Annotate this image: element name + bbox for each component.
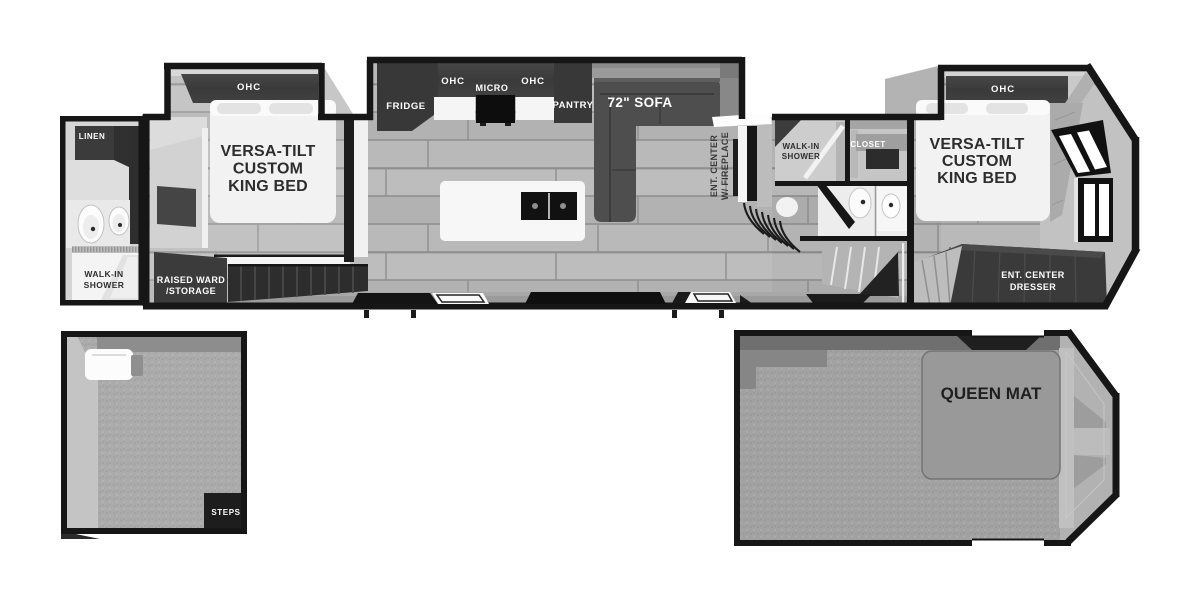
svg-text:KING BED: KING BED [228, 178, 308, 195]
svg-text:SHOWER: SHOWER [84, 280, 125, 290]
svg-text:72" SOFA: 72" SOFA [607, 95, 672, 110]
svg-text:CUSTOM: CUSTOM [942, 153, 1012, 170]
svg-text:QUEEN MAT: QUEEN MAT [941, 384, 1042, 403]
svg-text:KING BED: KING BED [937, 170, 1017, 187]
svg-text:ENT. CENTER: ENT. CENTER [1001, 270, 1065, 280]
svg-text:VERSA-TILT: VERSA-TILT [220, 143, 315, 160]
svg-text:OHC: OHC [237, 82, 261, 93]
svg-text:STEPS: STEPS [211, 508, 240, 517]
svg-text:ENT. CENTER: ENT. CENTER [709, 135, 719, 198]
svg-text:CLOSET: CLOSET [850, 140, 885, 149]
svg-text:DRESSER: DRESSER [1010, 282, 1056, 292]
svg-text:CUSTOM: CUSTOM [233, 161, 303, 178]
svg-text:LINEN: LINEN [79, 132, 106, 141]
svg-text:OHC: OHC [991, 84, 1015, 95]
svg-text:W/ FIREPLACE: W/ FIREPLACE [720, 132, 730, 200]
svg-text:FRIDGE: FRIDGE [386, 101, 426, 112]
svg-text:/STORAGE: /STORAGE [166, 286, 216, 296]
svg-text:RAISED WARD: RAISED WARD [157, 275, 226, 285]
svg-text:OHC: OHC [521, 76, 545, 87]
svg-text:PANTRY: PANTRY [553, 100, 594, 111]
svg-text:OHC: OHC [441, 76, 465, 87]
svg-text:WALK-IN: WALK-IN [84, 269, 123, 279]
svg-text:WALK-IN: WALK-IN [782, 142, 819, 151]
svg-text:MICRO: MICRO [476, 83, 509, 93]
svg-text:VERSA-TILT: VERSA-TILT [929, 136, 1024, 153]
svg-text:SHOWER: SHOWER [782, 152, 820, 161]
